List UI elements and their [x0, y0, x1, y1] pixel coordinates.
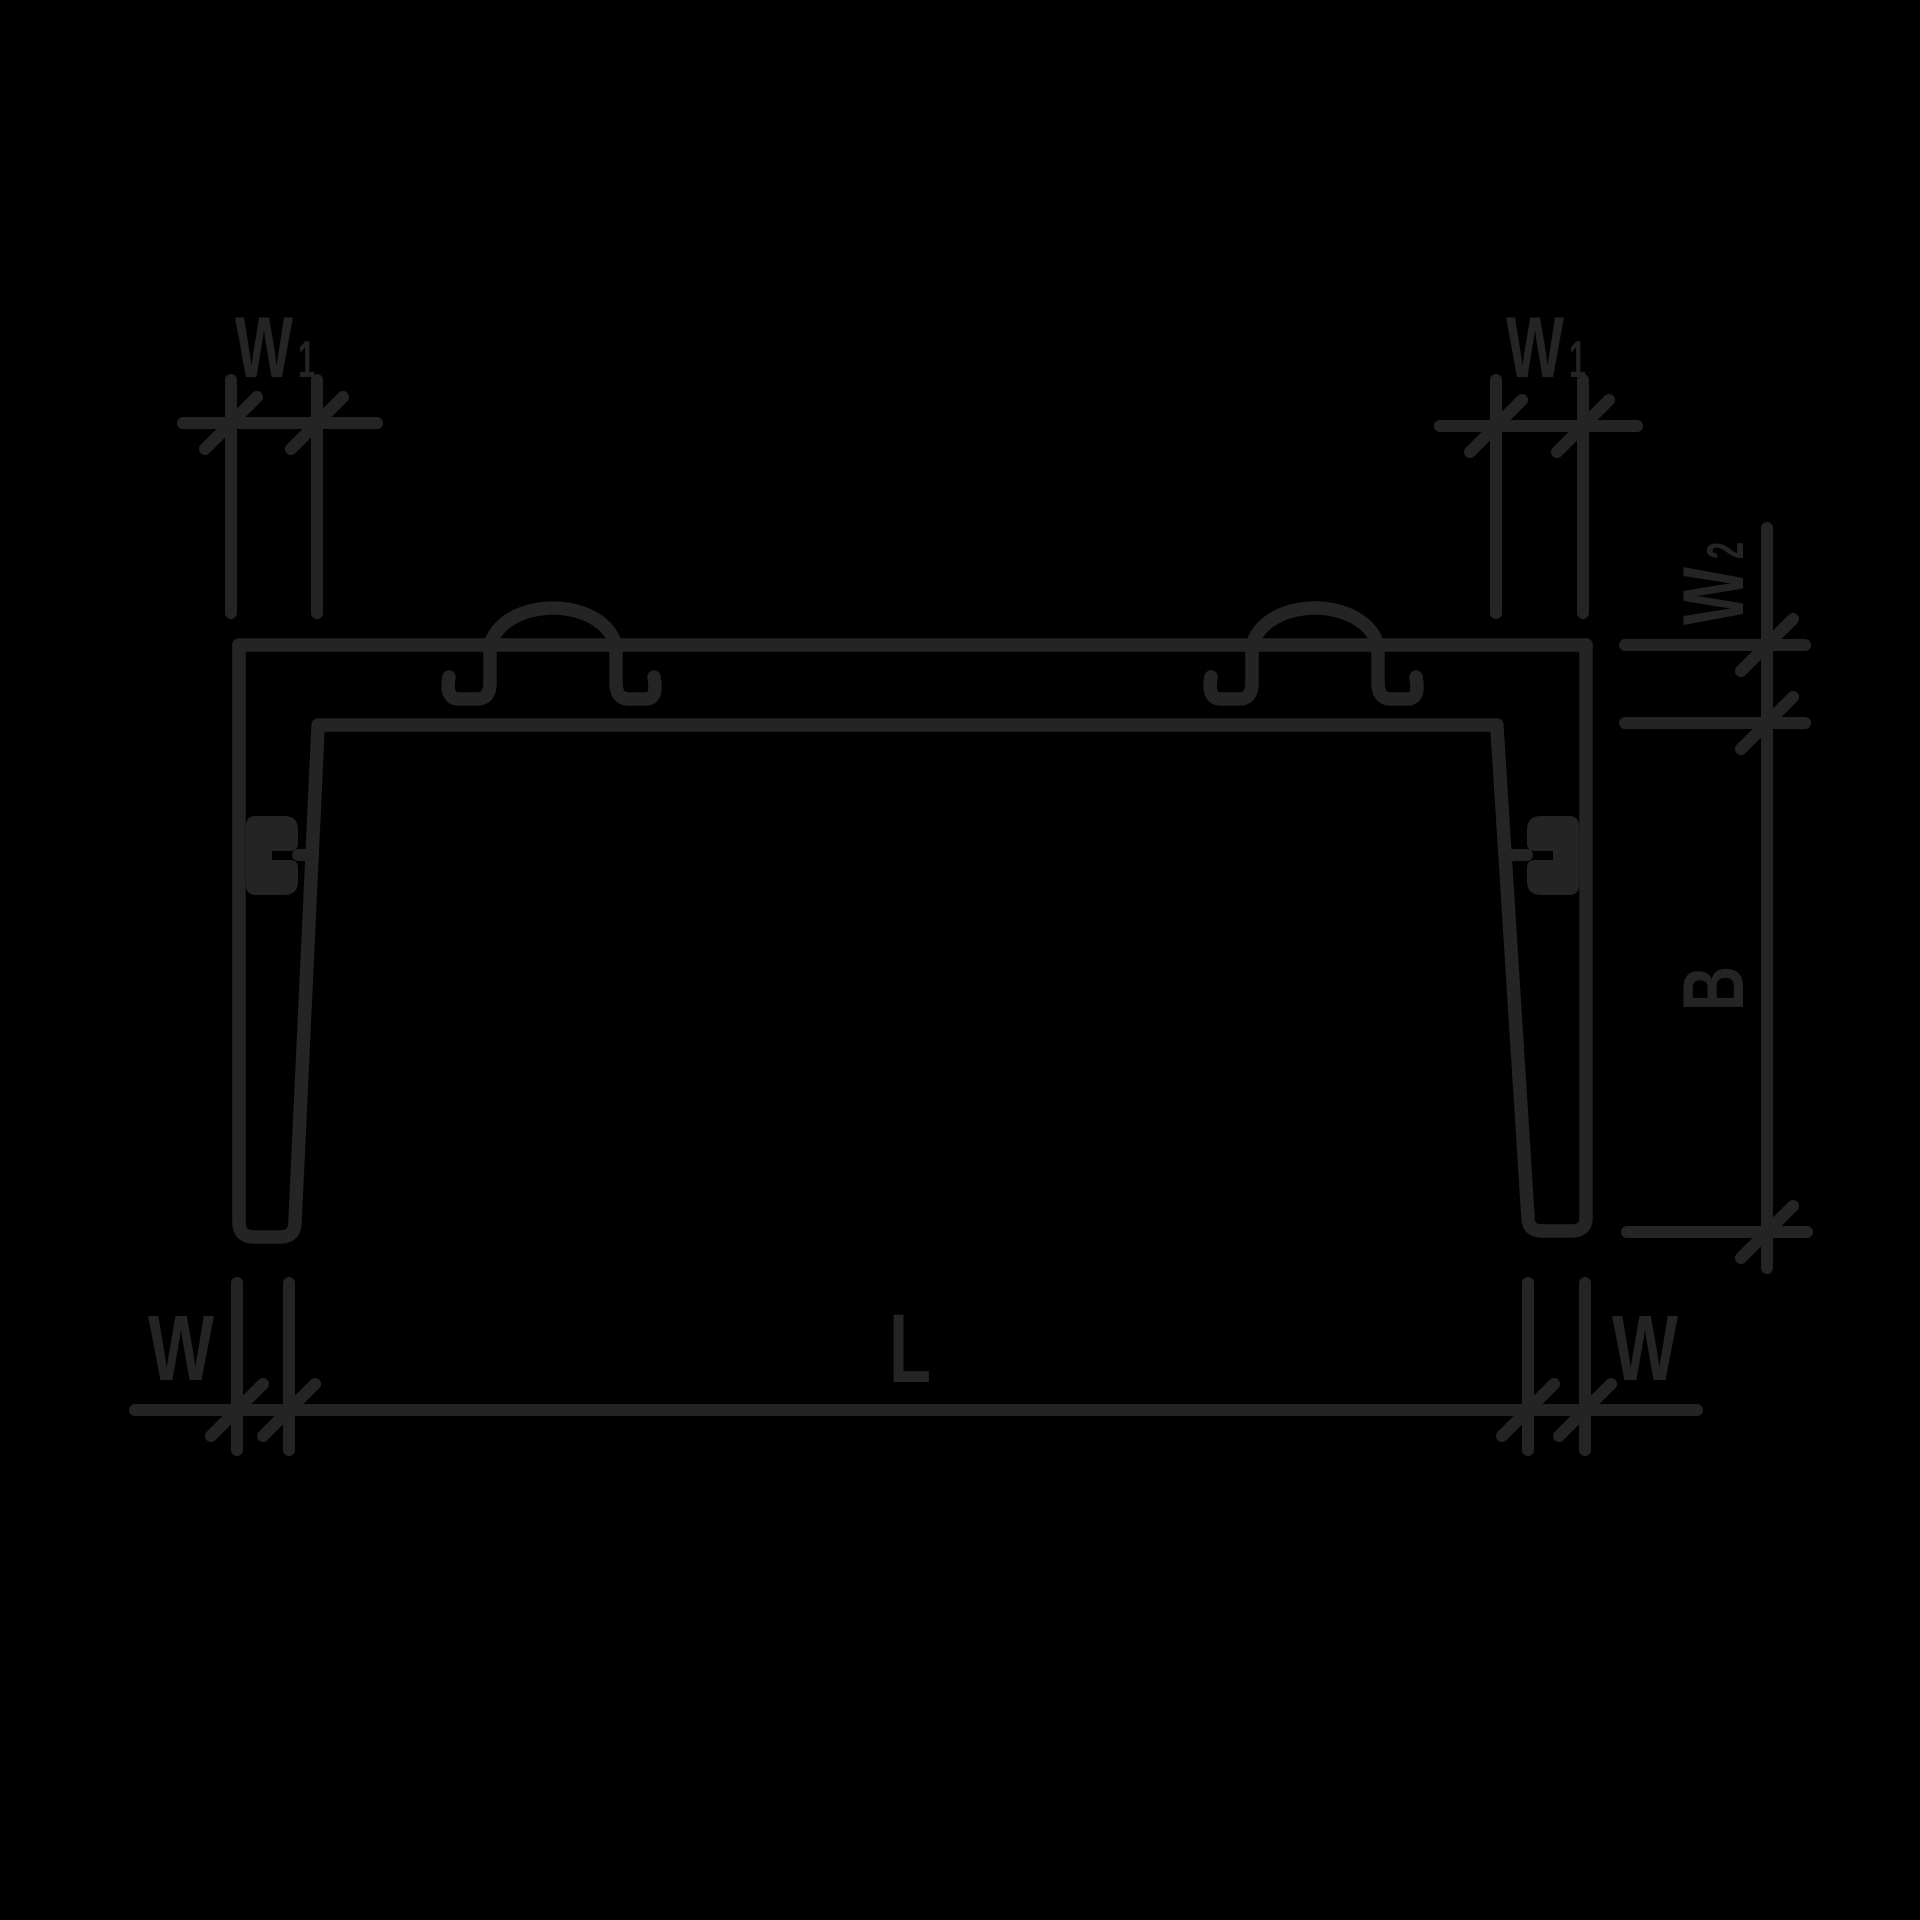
right-wall-lug: [1512, 816, 1579, 895]
w1-left-label: W: [235, 300, 294, 396]
profile-outline: [239, 608, 1586, 1237]
dimension-w2-and-b: W 2 B: [1625, 528, 1807, 1268]
w-bottom-left-label: W: [148, 1296, 214, 1400]
left-wall-lug: [246, 816, 313, 895]
w1-right-label-subscript: 1: [1569, 331, 1586, 389]
nib-right: [1210, 608, 1417, 699]
profile-left-wall: [239, 645, 318, 1237]
left-wall-lug-body: [246, 816, 298, 895]
right-wall-lug-body: [1527, 816, 1579, 895]
dimension-w1-right: W 1: [1440, 300, 1637, 613]
w-bottom-right-label: W: [1612, 1296, 1678, 1400]
w2-label: W: [1666, 566, 1762, 625]
diagram-canvas: W 1 W 1 W 2 B: [0, 0, 1920, 1920]
b-label: B: [1666, 966, 1762, 1011]
length-label: L: [889, 1294, 931, 1403]
profile-right-wall: [1497, 645, 1586, 1231]
nib-left: [448, 608, 655, 699]
dimension-w1-left: W 1: [183, 300, 377, 613]
w1-left-label-subscript: 1: [298, 331, 315, 389]
w1-right-label: W: [1506, 300, 1565, 396]
dimension-bottom-w-l-w: W L W: [135, 1283, 1697, 1450]
profile-dimension-drawing: W 1 W 1 W 2 B: [0, 0, 1920, 1920]
w2-label-subscript: 2: [1697, 542, 1755, 559]
